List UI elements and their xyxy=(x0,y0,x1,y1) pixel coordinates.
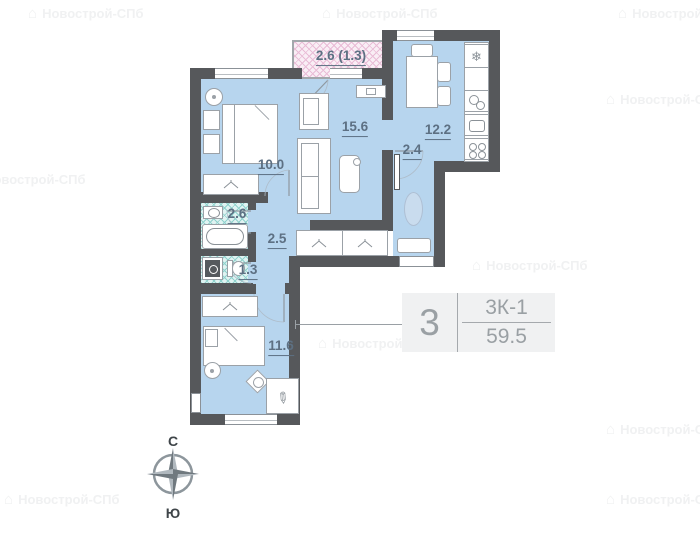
wall xyxy=(285,283,300,294)
wall xyxy=(382,150,393,230)
wall xyxy=(190,68,201,425)
building-icon: ⌂ xyxy=(606,422,615,437)
room-label-kitchen: 12.2 xyxy=(425,122,451,140)
bench xyxy=(397,238,431,253)
rooms-count: 3 xyxy=(402,293,457,352)
burner-icon xyxy=(478,143,486,151)
window xyxy=(225,414,277,425)
watermark: ⌂Новострой-СПб xyxy=(4,492,120,507)
floorplan-canvas: ⌂Новострой-СПб ⌂Новострой-СПб ⌂Новострой… xyxy=(0,0,700,538)
watermark: ⌂Новострой-СПб xyxy=(606,492,700,507)
desk-chair-seat xyxy=(253,377,264,388)
room-label-wc: 1.3 xyxy=(239,262,258,280)
room-label-balcony: 2.6 (1.3) xyxy=(316,48,366,66)
building-icon: ⌂ xyxy=(318,336,327,351)
watermark: ⌂Новострой-СПб xyxy=(472,258,588,273)
window xyxy=(215,68,268,79)
entrance-door xyxy=(399,256,434,267)
wall xyxy=(434,161,445,267)
watermark: ⌂Новострой-СПб xyxy=(0,172,86,187)
wardrobe xyxy=(203,174,259,195)
nightstand xyxy=(203,110,220,130)
plant-detail xyxy=(210,369,214,373)
plant-detail xyxy=(212,95,216,99)
wall xyxy=(248,203,256,210)
room-label-bedroom2: 11.6 xyxy=(268,338,294,356)
coffee-table-decor xyxy=(353,158,361,166)
watermark: ⌂Новострой-СПб xyxy=(606,422,700,437)
tv-icon xyxy=(366,88,376,95)
sink-bowl-icon xyxy=(208,208,220,218)
hanger-icon xyxy=(310,239,328,248)
radiator xyxy=(191,393,201,413)
info-box: 3 3К-1 59.5 xyxy=(402,293,555,352)
wall xyxy=(201,249,248,256)
washing-machine xyxy=(202,257,223,280)
hanger-icon xyxy=(222,180,240,189)
mirror xyxy=(394,154,400,190)
plan-type: 3К-1 xyxy=(458,294,555,322)
building-icon: ⌂ xyxy=(322,6,331,21)
closet-divider xyxy=(342,231,343,255)
fridge-icon: ❄ xyxy=(471,50,482,63)
hanger-icon xyxy=(221,302,239,311)
chair xyxy=(437,62,451,82)
cooktop xyxy=(464,138,489,160)
room-label-bedroom1: 10.0 xyxy=(258,157,284,175)
room-label-living: 15.6 xyxy=(342,119,368,137)
burner-icon xyxy=(469,151,477,159)
burner-icon xyxy=(469,143,477,151)
dining-table xyxy=(406,56,438,108)
hanger-icon xyxy=(356,239,374,248)
desk: ✎ xyxy=(266,378,299,414)
plan-area: 59.5 xyxy=(458,323,555,351)
double-bed xyxy=(222,104,278,164)
building-icon: ⌂ xyxy=(472,258,481,273)
nightstand xyxy=(203,134,220,154)
chair xyxy=(437,86,451,106)
watermark: ⌂Новострой-СПб xyxy=(618,6,700,21)
pillow xyxy=(205,329,218,347)
compass-icon xyxy=(143,444,203,504)
watermark: ⌂Новострой-СПб xyxy=(28,6,144,21)
wall xyxy=(489,30,500,172)
wall xyxy=(382,30,393,120)
pens-icon: ✎ xyxy=(273,389,292,409)
armchair-cushion xyxy=(303,98,319,125)
bathtub-inner xyxy=(206,228,244,245)
stove xyxy=(464,90,489,112)
wall xyxy=(248,232,256,262)
stove-pan-icon xyxy=(476,101,485,110)
closet-block xyxy=(296,230,388,256)
compass-south-label: Ю xyxy=(166,505,180,521)
sofa-cushion-line xyxy=(301,176,319,177)
fridge: ❄ xyxy=(464,44,489,68)
room-label-bathroom: 2.6 xyxy=(228,206,247,224)
wall xyxy=(190,283,253,294)
bed-headboard-line xyxy=(234,105,235,163)
room-label-corridor: 2.5 xyxy=(268,231,287,249)
watermark: ⌂Новострой-СПб xyxy=(322,6,438,21)
building-icon: ⌂ xyxy=(606,92,615,107)
window xyxy=(397,30,434,41)
window xyxy=(330,68,362,79)
watermark: ⌂Новострой-СПб xyxy=(606,92,700,107)
wardrobe xyxy=(202,296,258,317)
burner-icon xyxy=(478,151,486,159)
building-icon: ⌂ xyxy=(4,492,13,507)
building-icon: ⌂ xyxy=(606,492,615,507)
sink-basin-icon xyxy=(469,120,485,132)
rug xyxy=(404,192,423,226)
kitchen-sink xyxy=(464,114,489,136)
leader-line xyxy=(295,324,402,325)
building-icon: ⌂ xyxy=(618,6,627,21)
room-label-hall: 2.4 xyxy=(403,142,422,160)
washer-drum-icon xyxy=(209,265,218,274)
building-icon: ⌂ xyxy=(28,6,37,21)
